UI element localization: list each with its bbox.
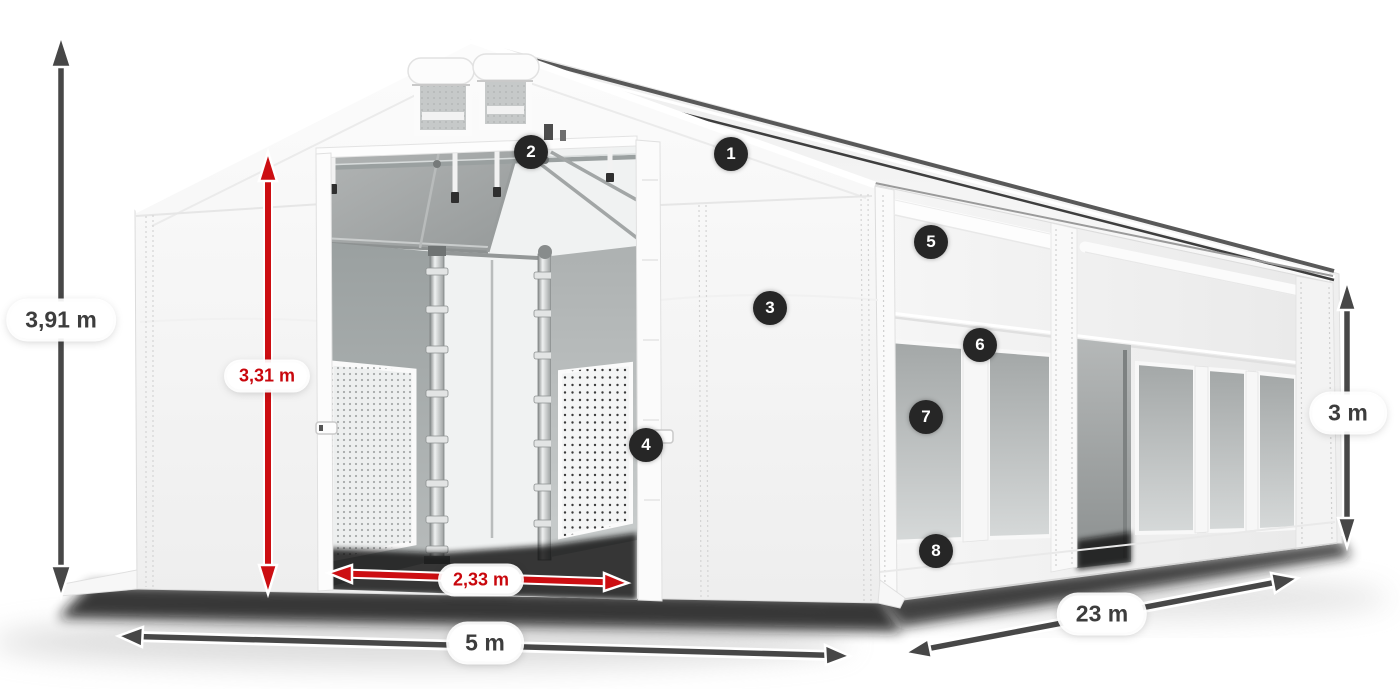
feature-badge-8[interactable]: 8	[919, 534, 953, 568]
feature-badge-3[interactable]: 3	[753, 291, 787, 325]
label-entrance-height: 3,31 m	[227, 363, 307, 390]
door-handle-left	[316, 422, 337, 434]
side-window	[1137, 363, 1195, 533]
side-window	[890, 341, 963, 542]
side-window	[988, 350, 1051, 538]
tent-dimension-diagram: 3,91 m 3,31 m 2,33 m 5 m 23 m 3 m 1 2 3 …	[0, 0, 1400, 700]
entrance-right-jamb	[636, 140, 662, 601]
side-doorway	[1077, 339, 1131, 570]
label-side-wall-height: 3 m	[1312, 395, 1384, 432]
feature-badge-7[interactable]: 7	[909, 400, 943, 434]
entrance-interior	[315, 130, 645, 610]
tent-illustration	[0, 0, 1400, 700]
entrance-left-jamb	[316, 153, 333, 591]
side-window	[1208, 369, 1246, 531]
feature-badge-4[interactable]: 4	[629, 428, 663, 462]
feature-badge-6[interactable]: 6	[963, 328, 997, 362]
label-entrance-width: 2,33 m	[441, 567, 521, 594]
label-front-width: 5 m	[449, 625, 521, 662]
feature-badge-2[interactable]: 2	[514, 135, 548, 169]
label-side-length: 23 m	[1060, 596, 1144, 633]
side-window	[1258, 373, 1296, 530]
label-total-height: 3,91 m	[9, 302, 113, 339]
feature-badge-1[interactable]: 1	[714, 137, 748, 171]
feature-badge-5[interactable]: 5	[914, 225, 948, 259]
